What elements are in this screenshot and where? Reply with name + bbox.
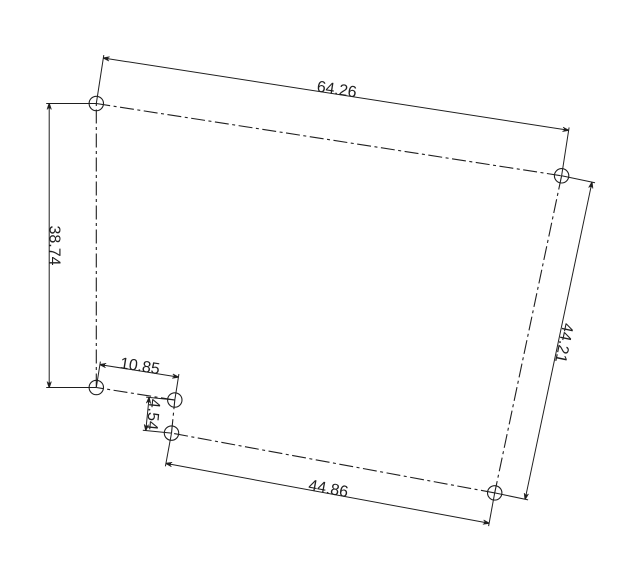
svg-text:10.85: 10.85 [119,355,161,378]
svg-text:44.21: 44.21 [551,322,576,365]
svg-text:64.26: 64.26 [316,79,358,102]
svg-text:4.54: 4.54 [143,398,163,431]
svg-text:44.86: 44.86 [307,477,350,501]
svg-text:38.74: 38.74 [46,225,63,265]
